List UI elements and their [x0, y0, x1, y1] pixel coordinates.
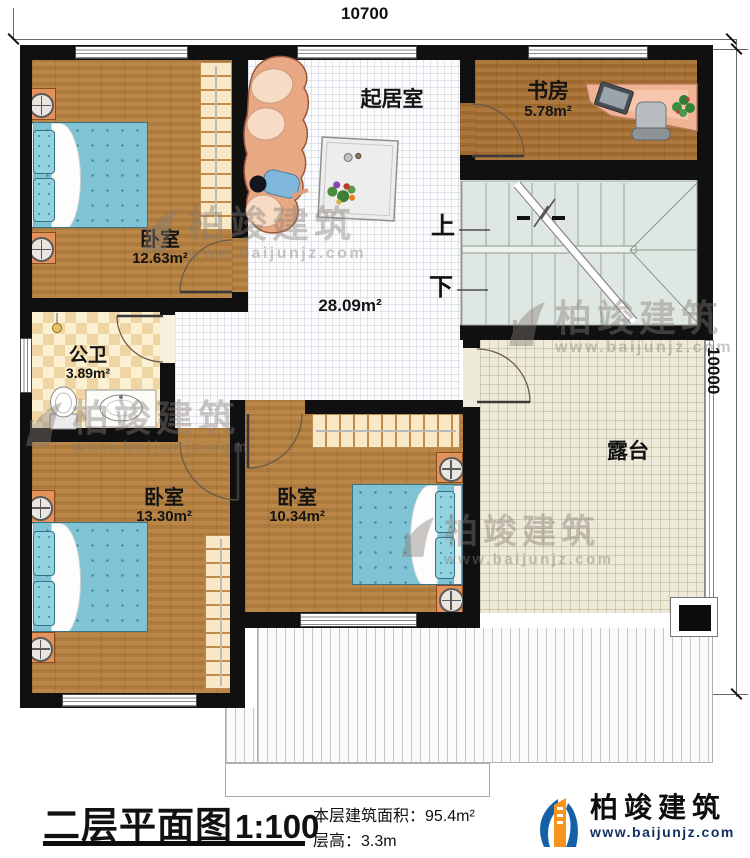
room-area-living: 28.09m²	[300, 296, 400, 315]
room-name: 露台	[578, 440, 678, 464]
room-area: 3.89m²	[38, 366, 138, 382]
room-name: 公卫	[38, 345, 138, 366]
room-label-bath: 公卫 3.89m²	[38, 345, 138, 382]
floor-area-value: 95.4m²	[425, 808, 475, 825]
extension-line	[713, 694, 748, 695]
drawing-scale: 1:100	[235, 808, 319, 845]
stair-up-label: 上	[431, 206, 455, 241]
stair-down-label: 下	[429, 267, 453, 302]
sink	[86, 390, 156, 427]
extension-line	[13, 8, 14, 39]
dimension-top-line	[13, 39, 737, 40]
floor-height-label: 层高：	[313, 833, 361, 850]
toilet	[50, 387, 77, 429]
room-label-bedroom-bl: 卧室 13.30m²	[114, 487, 214, 526]
room-name: 起居室	[342, 88, 442, 112]
title-underline	[43, 841, 305, 846]
drawing-title-text: 二层平面图	[43, 805, 233, 846]
room-area: 13.30m²	[114, 509, 214, 526]
door-bedroom-bm	[248, 414, 302, 468]
desk-chair	[632, 102, 670, 140]
door-terrace	[477, 349, 530, 402]
coffee-table-rug	[318, 137, 398, 221]
floor-height-value: 3.3m	[361, 833, 397, 850]
plan-overlay	[0, 0, 750, 858]
pendant-light-icon	[53, 313, 62, 333]
room-label-terrace: 露台	[578, 440, 678, 464]
room-area: 12.63m²	[110, 251, 210, 268]
room-area: 28.09m²	[300, 296, 400, 315]
sofa	[244, 57, 308, 233]
dimension-top-label: 10700	[341, 4, 388, 24]
floor-height-line: 层高：3.3m	[313, 830, 475, 855]
room-label-living: 起居室	[342, 88, 442, 112]
brand-logo-block: 柏竣建筑 www.baijunjz.com	[534, 793, 735, 851]
brand-site: www.baijunjz.com	[590, 824, 735, 840]
floor-area-label: 本层建筑面积：	[313, 808, 425, 825]
room-name: 书房	[498, 80, 598, 104]
room-label-bedroom-bm: 卧室 10.34m²	[247, 487, 347, 526]
room-name: 卧室	[247, 487, 347, 509]
floor-area-line: 本层建筑面积：95.4m²	[313, 805, 475, 830]
room-name: 卧室	[114, 487, 214, 509]
brand-name: 柏竣建筑	[590, 793, 735, 824]
room-name: 卧室	[110, 229, 210, 251]
study-desk	[586, 81, 697, 140]
baijun-logo-icon	[534, 793, 582, 851]
room-area: 10.34m²	[247, 509, 347, 526]
room-area: 5.78m²	[498, 104, 598, 121]
dimension-right-line	[736, 40, 737, 697]
dimension-right-label: 10000	[703, 347, 723, 394]
floorplan-canvas: 10700 10000	[0, 0, 750, 858]
floor-info: 本层建筑面积：95.4m² 层高：3.3m	[313, 805, 475, 855]
room-label-study: 书房 5.78m²	[498, 80, 598, 120]
extension-line	[713, 49, 748, 50]
room-label-bedroom-tl: 卧室 12.63m²	[110, 229, 210, 268]
